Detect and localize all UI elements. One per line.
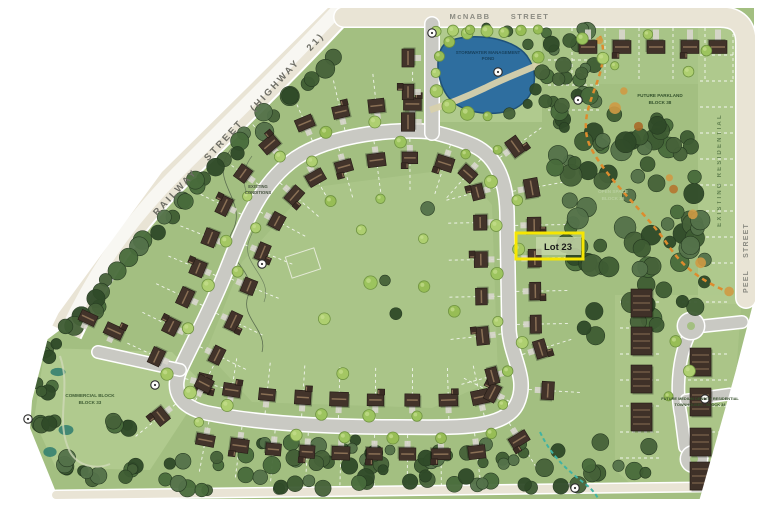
tree-icon (356, 225, 366, 235)
node-marker-dot (261, 263, 263, 265)
tree-icon (513, 243, 525, 255)
tree-highlight (518, 339, 522, 343)
tree-icon (376, 194, 385, 203)
autumn-tree-icon (688, 209, 698, 219)
forest-tree-icon (551, 444, 565, 458)
tree-icon (493, 316, 503, 326)
tree-icon (444, 36, 455, 47)
tree-highlight (308, 158, 312, 162)
forest-tree-icon (562, 193, 577, 208)
roof-ridge (297, 397, 309, 398)
node-marker-dot (577, 99, 579, 101)
forest-tree-icon (36, 386, 47, 397)
forest-tree-icon (536, 459, 554, 477)
future-parkland-label-2: BLOCK 38 (649, 100, 672, 105)
site-plan-page: RAILWAY STREET (HIGHWAY 21) McNABB STREE… (0, 0, 760, 505)
autumn-tree-icon (634, 122, 643, 131)
mcnabb-street-label-2: STREET (511, 12, 550, 21)
forest-tree-icon (599, 257, 619, 277)
tree-icon (251, 223, 261, 233)
tree-highlight (432, 87, 436, 91)
roof-ridge (302, 451, 313, 452)
tree-icon (512, 195, 523, 206)
forest-tree-icon (595, 133, 610, 148)
forest-tree-icon (543, 36, 559, 52)
forest-tree-icon (523, 99, 532, 108)
tree-icon (387, 432, 399, 444)
commercial-block-label-1: COMMERCIAL BLOCK (65, 393, 115, 398)
tree-highlight (292, 431, 296, 435)
forest-tree-icon (175, 453, 191, 469)
node-marker-dot (574, 487, 576, 489)
tree-icon (220, 235, 232, 247)
tree-icon (221, 399, 233, 411)
forest-tree-icon (380, 275, 391, 286)
tree-highlight (327, 197, 331, 201)
tree-icon (461, 149, 471, 159)
existing-conditions-label-1: EXISTING (248, 184, 268, 189)
tree-highlight (339, 370, 343, 374)
open-space-label-2: BLOCK 36 (602, 196, 625, 201)
forest-tree-icon (632, 261, 648, 277)
tree-highlight (365, 412, 369, 416)
forest-tree-icon (577, 321, 591, 335)
tree-icon (395, 136, 407, 148)
roof-ridge (268, 449, 279, 450)
townhouse-block-label-1: FUTURE MEDIUM DENSITY RESIDENTIAL (661, 396, 739, 401)
tree-highlight (196, 419, 199, 422)
tree-highlight (463, 151, 466, 154)
tree-highlight (504, 368, 508, 372)
park-pond (43, 447, 56, 457)
tree-icon (306, 156, 317, 167)
forest-tree-icon (390, 308, 402, 320)
forest-tree-icon (508, 455, 519, 466)
forest-tree-icon (421, 202, 435, 216)
tree-highlight (449, 27, 453, 31)
tree-icon (465, 25, 474, 34)
tree-icon (502, 366, 513, 377)
tree-icon (318, 313, 330, 325)
forest-tree-icon (666, 137, 682, 153)
tree-icon (516, 25, 526, 35)
forest-tree-icon (568, 156, 581, 169)
mcnabb-street-label-1: McNABB (449, 12, 490, 21)
tree-icon (516, 337, 528, 349)
forest-tree-icon (105, 413, 121, 429)
forest-tree-icon (316, 59, 335, 78)
tree-icon (483, 112, 492, 121)
forest-tree-icon (656, 282, 672, 298)
forest-tree-icon (567, 208, 588, 229)
forest-tree-icon (563, 34, 577, 48)
forest-tree-icon (684, 183, 704, 203)
townhouse-block (631, 289, 654, 319)
forest-tree-icon (552, 73, 565, 86)
wing-ridge (236, 380, 237, 384)
tree-highlight (483, 27, 487, 31)
tree-icon (363, 410, 375, 422)
forest-tree-icon (210, 451, 222, 463)
forest-tree-icon (698, 276, 710, 288)
forest-tree-icon (282, 87, 299, 104)
tree-highlight (485, 113, 488, 116)
forest-tree-icon (559, 122, 569, 132)
autumn-tree-icon (724, 287, 734, 297)
forest-tree-icon (42, 416, 57, 431)
wing-ridge (234, 452, 235, 456)
tree-highlight (493, 270, 497, 274)
tree-highlight (184, 325, 188, 329)
tree-highlight (234, 268, 238, 272)
tree-highlight (320, 315, 324, 319)
forest-tree-icon (458, 469, 474, 485)
forest-tree-icon (535, 65, 550, 80)
tree-icon (683, 365, 695, 377)
tree-icon (670, 336, 681, 347)
node-marker-dot (27, 418, 29, 420)
tree-icon (412, 411, 422, 421)
site-plan-map: RAILWAY STREET (HIGHWAY 21) McNABB STREE… (0, 0, 760, 505)
margin-top (0, 0, 760, 8)
autumn-tree-icon (620, 87, 627, 94)
tree-icon (418, 281, 429, 292)
lot-23-label: Lot 23 (544, 242, 572, 253)
tree-highlight (252, 225, 256, 229)
tree-highlight (672, 338, 676, 342)
tree-highlight (487, 177, 492, 182)
tree-highlight (599, 54, 603, 58)
forest-tree-icon (518, 478, 532, 492)
tree-icon (182, 323, 193, 334)
tree-icon (325, 196, 336, 207)
tree-icon (486, 428, 497, 439)
forest-tree-icon (554, 98, 569, 113)
open-space-label-1: OPEN SPACE (598, 189, 628, 194)
forest-tree-icon (385, 445, 395, 455)
forest-tree-icon (547, 159, 564, 176)
tree-icon (232, 266, 243, 277)
autumn-tree-icon (666, 174, 673, 181)
tree-highlight (377, 196, 380, 199)
forest-tree-icon (556, 57, 572, 73)
road (704, 322, 742, 326)
tree-highlight (437, 435, 441, 439)
tree-icon (577, 33, 589, 45)
forest-tree-icon (641, 438, 658, 455)
forest-tree-icon (378, 465, 388, 475)
townhouse-block (631, 403, 654, 433)
tree-icon (430, 85, 443, 98)
autumn-tree-icon (695, 257, 706, 268)
node-marker-dot (497, 71, 499, 73)
tree-highlight (518, 27, 522, 31)
tree-highlight (612, 63, 615, 66)
tree-highlight (495, 147, 498, 150)
tree-icon (431, 68, 440, 77)
stormwater-pond-label-2: POND (482, 56, 495, 61)
tree-icon (499, 27, 509, 37)
forest-tree-icon (238, 467, 254, 483)
tree-highlight (501, 29, 505, 33)
tree-highlight (204, 281, 208, 285)
tree-highlight (703, 47, 707, 51)
commercial-block-label-2: BLOCK 33 (79, 400, 102, 405)
forest-tree-icon (661, 218, 674, 231)
townhouse-block (631, 327, 654, 357)
forest-tree-icon (688, 170, 702, 184)
park-pond (59, 425, 74, 435)
tree-highlight (492, 222, 496, 226)
forest-tree-icon (315, 480, 331, 496)
site-plan-graphics (0, 0, 760, 505)
tree-icon (369, 116, 381, 128)
forest-tree-icon (170, 475, 186, 491)
forest-tree-icon (687, 298, 704, 315)
forest-tree-icon (80, 466, 93, 479)
tree-icon (184, 386, 197, 399)
forest-tree-icon (523, 39, 534, 50)
tree-highlight (436, 53, 440, 57)
forest-tree-icon (498, 458, 509, 469)
tree-highlight (420, 236, 423, 239)
townhouse-block (631, 365, 654, 395)
roof-ridge (547, 384, 548, 398)
tree-icon (701, 45, 712, 56)
tree-icon (533, 25, 542, 34)
tree-highlight (397, 138, 401, 142)
tree-highlight (467, 27, 470, 30)
tree-icon (320, 126, 332, 138)
tree-highlight (318, 411, 322, 415)
forest-tree-icon (263, 456, 281, 474)
tree-icon (418, 234, 428, 244)
tree-highlight (389, 434, 393, 438)
forest-tree-icon (287, 476, 303, 492)
tree-icon (460, 106, 474, 120)
tree-icon (490, 220, 502, 232)
autumn-tree-icon (609, 102, 621, 114)
stormwater-pond-label-1: STORMWATER MANAGEMENT (456, 50, 521, 55)
tree-icon (290, 429, 302, 441)
tree-highlight (414, 413, 418, 417)
tree-highlight (163, 370, 167, 374)
forest-tree-icon (530, 83, 542, 95)
tree-icon (683, 66, 694, 77)
forest-tree-icon (477, 478, 489, 490)
tree-highlight (341, 434, 345, 438)
future-parkland-label-1: FUTURE PARKLAND (637, 93, 683, 98)
forest-tree-icon (574, 132, 592, 150)
culdesac-island (687, 322, 695, 330)
forest-tree-icon (592, 434, 609, 451)
townhouse-block (690, 428, 713, 458)
tree-highlight (371, 118, 375, 122)
forest-tree-icon (582, 459, 596, 473)
node-marker-dot (154, 384, 156, 386)
forest-tree-icon (681, 236, 699, 254)
forest-tree-icon (615, 132, 636, 153)
forest-tree-icon (553, 478, 569, 494)
forest-tree-icon (648, 116, 666, 134)
tree-highlight (579, 35, 583, 39)
tree-icon (481, 25, 493, 37)
forest-tree-icon (51, 338, 62, 349)
forest-tree-icon (613, 460, 624, 471)
tree-icon (498, 400, 508, 410)
tree-highlight (463, 109, 468, 114)
tree-icon (491, 267, 503, 279)
forest-tree-icon (504, 108, 516, 120)
tree-icon (434, 51, 444, 61)
forest-tree-icon (640, 157, 655, 172)
peel-street-label: PEEL STREET (743, 223, 750, 293)
tree-icon (643, 30, 653, 40)
tree-icon (532, 51, 544, 63)
tree-icon (447, 25, 458, 36)
forest-tree-icon (640, 467, 651, 478)
tree-highlight (444, 102, 449, 107)
tree-highlight (276, 153, 280, 157)
tree-highlight (645, 31, 648, 34)
existing-conditions-label-2: CONDITIONS (245, 190, 271, 195)
forest-tree-icon (351, 475, 366, 490)
townhouse-block-label-2: TOWNHOUSES - BLOCK 34 (675, 402, 727, 407)
tree-highlight (223, 402, 227, 406)
tree-icon (485, 175, 498, 188)
tree-highlight (535, 26, 538, 29)
tree-icon (611, 62, 619, 70)
node-marker-dot (431, 32, 433, 34)
tree-highlight (685, 68, 689, 72)
forest-tree-icon (419, 470, 431, 482)
tree-icon (339, 432, 350, 443)
tree-icon (316, 409, 328, 421)
tree-highlight (450, 307, 454, 311)
forest-tree-icon (164, 458, 176, 470)
forest-tree-icon (631, 169, 645, 183)
tree-icon (448, 305, 460, 317)
margin-bottom (0, 499, 760, 505)
tree-highlight (495, 318, 499, 322)
forest-tree-icon (304, 71, 319, 86)
forest-tree-icon (253, 470, 268, 485)
forest-tree-icon (594, 239, 607, 252)
tree-highlight (500, 401, 503, 404)
tree-icon (364, 276, 377, 289)
tree-highlight (358, 227, 361, 230)
forest-tree-icon (586, 302, 603, 319)
forest-tree-icon (402, 474, 417, 489)
tree-icon (274, 151, 285, 162)
forest-tree-icon (151, 225, 166, 240)
tree-highlight (420, 283, 424, 287)
forest-tree-icon (303, 475, 315, 487)
tree-icon (194, 417, 204, 427)
forest-tree-icon (231, 146, 245, 160)
forest-tree-icon (575, 67, 587, 79)
tree-highlight (534, 53, 538, 57)
tree-icon (202, 279, 214, 291)
existing-residential-label: EXISTING RESIDENTIAL (717, 113, 723, 227)
tree-icon (161, 368, 173, 380)
forest-tree-icon (119, 470, 133, 484)
tree-highlight (366, 278, 371, 283)
forest-tree-icon (274, 480, 288, 494)
tree-icon (493, 145, 502, 154)
tree-highlight (322, 128, 326, 132)
forest-tree-icon (670, 205, 684, 219)
forest-tree-icon (676, 295, 688, 307)
forest-tree-icon (58, 319, 73, 334)
tree-highlight (514, 197, 518, 201)
tree-icon (597, 52, 609, 64)
tree-highlight (433, 70, 436, 73)
tree-icon (436, 433, 447, 444)
tree-highlight (488, 430, 492, 434)
forest-tree-icon (195, 483, 209, 497)
tree-icon (337, 368, 349, 380)
tree-highlight (446, 38, 450, 42)
tree-highlight (686, 367, 690, 371)
forest-tree-icon (633, 240, 650, 257)
autumn-tree-icon (669, 185, 678, 194)
forest-tree-icon (478, 457, 488, 467)
forest-tree-icon (648, 175, 665, 192)
tree-icon (442, 99, 456, 113)
forest-tree-icon (58, 449, 75, 466)
forest-tree-icon (539, 95, 552, 108)
tree-highlight (186, 388, 190, 392)
tree-highlight (222, 237, 226, 241)
